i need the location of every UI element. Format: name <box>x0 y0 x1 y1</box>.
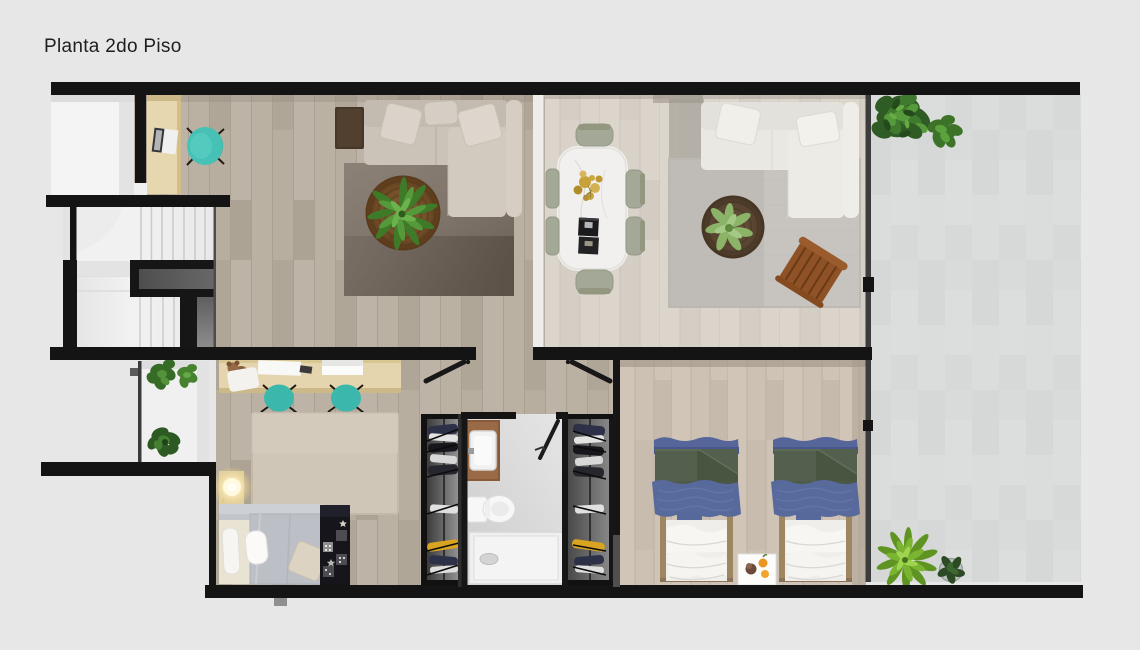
svg-text:Planta 2do Piso: Planta 2do Piso <box>44 36 182 57</box>
